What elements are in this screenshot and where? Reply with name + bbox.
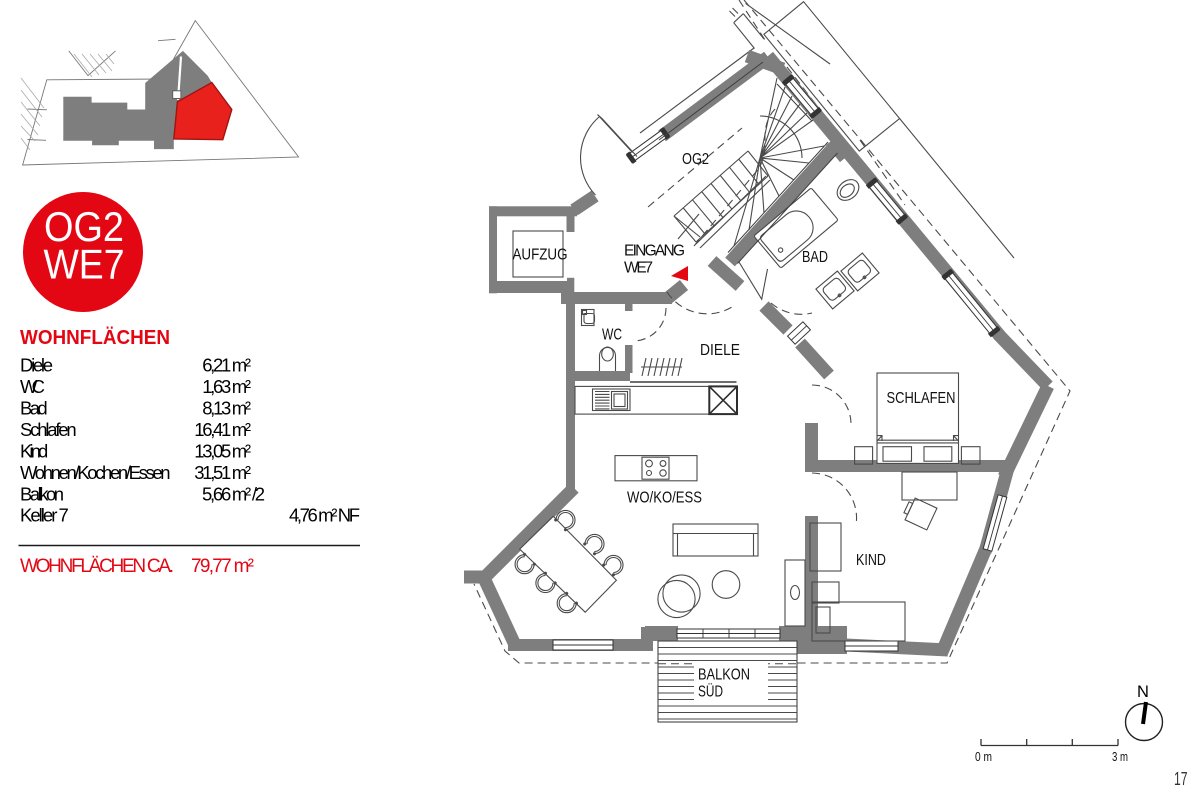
svg-text:31,51 m²: 31,51 m² xyxy=(194,462,251,483)
svg-text:Schlafen: Schlafen xyxy=(20,419,77,440)
svg-text:WE7: WE7 xyxy=(44,241,125,288)
svg-text:3 m: 3 m xyxy=(1112,749,1128,764)
svg-text:6,21 m²: 6,21 m² xyxy=(202,355,251,376)
svg-text:SCHLAFEN: SCHLAFEN xyxy=(887,390,956,407)
svg-text:WOHNFLÄCHEN: WOHNFLÄCHEN xyxy=(20,326,170,349)
svg-text:1,63 m²: 1,63 m² xyxy=(202,376,251,397)
svg-text:N: N xyxy=(1137,683,1149,701)
svg-text:8,13 m²: 8,13 m² xyxy=(202,398,251,419)
svg-text:Bad: Bad xyxy=(20,398,48,419)
svg-text:WC: WC xyxy=(20,376,45,397)
svg-text:Balkon: Balkon xyxy=(20,484,64,505)
svg-text:5,66 m² /2: 5,66 m² /2 xyxy=(202,484,265,505)
svg-text:SÜD: SÜD xyxy=(698,683,723,701)
svg-text:Keller 7: Keller 7 xyxy=(20,505,69,526)
svg-text:Wohnen/Kochen/Essen: Wohnen/Kochen/Essen xyxy=(20,462,171,483)
svg-text:KIND: KIND xyxy=(856,552,886,569)
svg-text:79,77 m²: 79,77 m² xyxy=(191,556,254,577)
svg-text:WOHNFLÄCHEN CA.: WOHNFLÄCHEN CA. xyxy=(20,556,174,577)
svg-text:AUFZUG: AUFZUG xyxy=(513,247,568,264)
svg-text:WE7: WE7 xyxy=(624,260,653,277)
svg-text:Diele: Diele xyxy=(20,355,53,376)
svg-text:4,76 m² NF: 4,76 m² NF xyxy=(289,505,360,526)
svg-text:16,41 m²: 16,41 m² xyxy=(194,419,251,440)
svg-text:WO/KO/ESS: WO/KO/ESS xyxy=(627,490,702,507)
svg-text:Kind: Kind xyxy=(20,441,48,462)
svg-text:WC: WC xyxy=(602,327,622,344)
svg-text:17: 17 xyxy=(1174,769,1188,789)
svg-text:EINGANG: EINGANG xyxy=(624,243,685,260)
svg-text:OG2: OG2 xyxy=(682,151,709,168)
svg-text:BALKON: BALKON xyxy=(698,667,750,684)
svg-text:DIELE: DIELE xyxy=(700,342,740,359)
svg-text:0 m: 0 m xyxy=(975,749,992,764)
svg-text:BAD: BAD xyxy=(802,249,828,266)
svg-text:13,05 m²: 13,05 m² xyxy=(194,441,251,462)
